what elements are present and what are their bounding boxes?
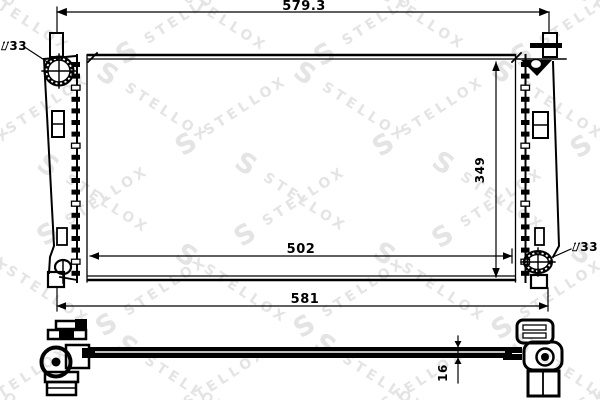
core-thickness-label: 16 (436, 364, 450, 382)
radiator-technical-drawing: 579.3 (0, 0, 600, 400)
overall-width-label: 581 (291, 292, 320, 307)
left-filler-neck (50, 33, 63, 57)
left-header-strip (72, 55, 88, 282)
front-view: 579.3 (0, 0, 598, 311)
dimension-top-width: 579.3 (57, 0, 549, 33)
left-mount-bracket (42, 319, 94, 395)
right-tank-rib-detail (535, 228, 544, 245)
core-height-label: 349 (473, 157, 487, 184)
dimension-core-width: 502 (90, 242, 512, 263)
side-view: 16 (42, 319, 563, 396)
left-port-diameter-label: ⌰33 (0, 39, 27, 53)
technical-drawing-page: S STELLOX S STELLOX S STELLOX S STELLOX … (0, 0, 600, 400)
core-width-label: 502 (287, 242, 316, 257)
dimension-overall-width: 581 (57, 288, 548, 311)
top-width-label: 579.3 (282, 0, 326, 14)
side-core-bar (88, 347, 512, 358)
dimension-core-height: 349 (473, 62, 496, 277)
dimension-core-thickness: 16 (436, 336, 462, 383)
port-label-left: ⌰33 (0, 39, 49, 63)
right-port-diameter-label: ⌰33 (571, 240, 598, 254)
right-mount-foot (531, 275, 547, 288)
left-tank-rib-detail (57, 228, 67, 245)
right-header-strip (516, 55, 530, 282)
right-mount-bracket (503, 320, 562, 396)
